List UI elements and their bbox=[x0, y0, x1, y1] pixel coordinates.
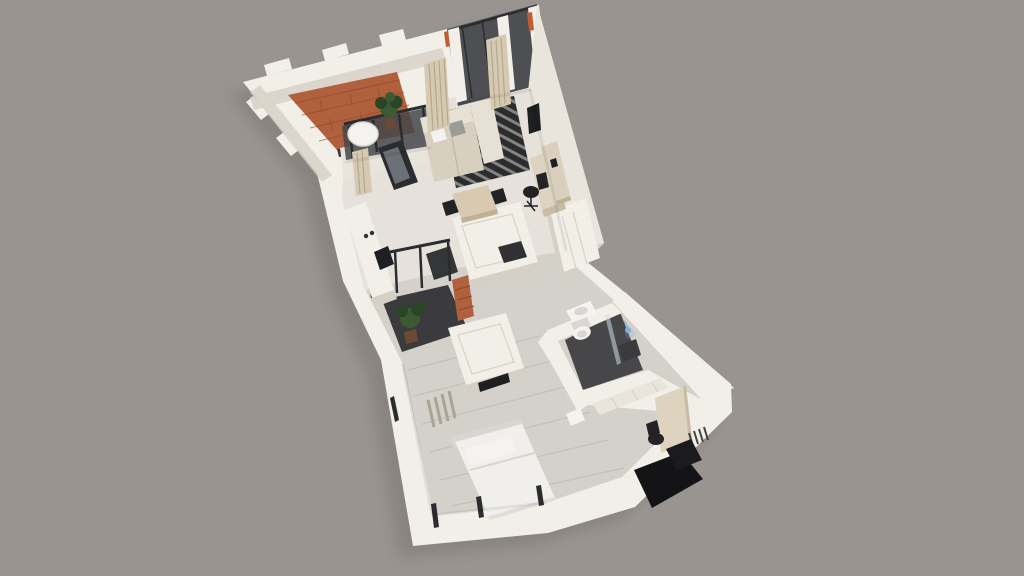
plant-foliage bbox=[385, 92, 395, 102]
plant-pot bbox=[384, 118, 396, 130]
plant-foliage bbox=[411, 302, 425, 316]
plant-foliage bbox=[375, 97, 387, 109]
entry-chair-seat bbox=[648, 433, 664, 445]
apartment-3d-floorplan-render bbox=[0, 0, 1024, 576]
chair-seat bbox=[523, 186, 539, 198]
cooktop-burner bbox=[370, 231, 374, 235]
shower-spray bbox=[625, 329, 635, 339]
floorplan-canvas bbox=[0, 0, 1024, 576]
plant-foliage bbox=[396, 305, 408, 317]
cooktop-burner bbox=[364, 234, 368, 238]
